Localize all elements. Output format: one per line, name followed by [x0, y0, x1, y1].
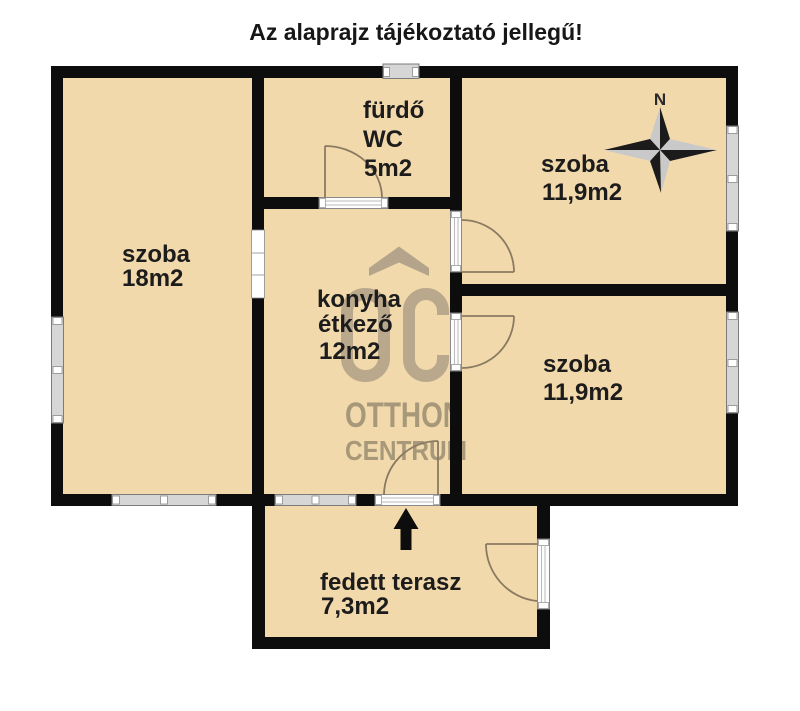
svg-text:szoba: szoba	[541, 151, 610, 178]
svg-text:étkező: étkező	[318, 311, 393, 338]
svg-text:konyha: konyha	[317, 286, 402, 313]
svg-text:WC: WC	[363, 126, 403, 153]
svg-text:Az alaprajz tájékoztató jelleg: Az alaprajz tájékoztató jellegű!	[249, 19, 583, 45]
svg-text:szoba: szoba	[122, 241, 191, 268]
svg-text:N: N	[654, 90, 666, 109]
svg-text:fedett terasz: fedett terasz	[320, 569, 461, 596]
svg-text:OTTHON: OTTHON	[345, 396, 463, 435]
svg-text:7,3m2: 7,3m2	[321, 593, 389, 620]
svg-text:12m2: 12m2	[319, 338, 380, 365]
svg-text:11,9m2: 11,9m2	[542, 179, 622, 206]
svg-text:18m2: 18m2	[122, 265, 183, 292]
svg-text:11,9m2: 11,9m2	[543, 379, 623, 406]
svg-text:5m2: 5m2	[364, 155, 412, 182]
svg-text:fürdő: fürdő	[363, 97, 424, 124]
svg-text:szoba: szoba	[543, 351, 612, 378]
